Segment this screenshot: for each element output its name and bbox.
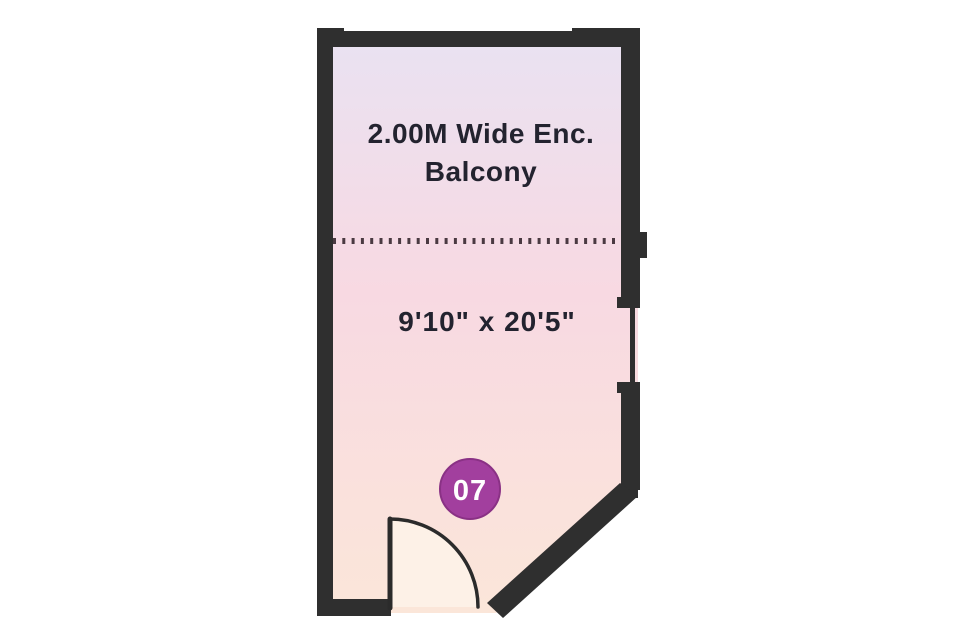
bottom-wall bbox=[317, 599, 391, 616]
right-wall-upper bbox=[621, 31, 640, 308]
balcony-label-line1: 2.00M Wide Enc. bbox=[368, 118, 595, 149]
unit-badge: 07 bbox=[440, 459, 500, 519]
floor-plan: 2.00M Wide Enc. Balcony 9'10" x 20'5" 07 bbox=[0, 0, 957, 625]
right-wall-partition-notch bbox=[635, 232, 647, 258]
left-wall bbox=[317, 30, 333, 616]
window-cap-top bbox=[617, 297, 640, 308]
right-wall-lower bbox=[621, 382, 640, 490]
room-dimensions-label: 9'10" x 20'5" bbox=[398, 306, 575, 337]
balcony-label-line2: Balcony bbox=[425, 156, 537, 187]
unit-badge-number: 07 bbox=[453, 475, 487, 507]
floor-plan-canvas: 2.00M Wide Enc. Balcony 9'10" x 20'5" 07 bbox=[0, 0, 957, 625]
top-wall-left-corner bbox=[317, 28, 344, 47]
window-glazing-line bbox=[630, 308, 635, 382]
